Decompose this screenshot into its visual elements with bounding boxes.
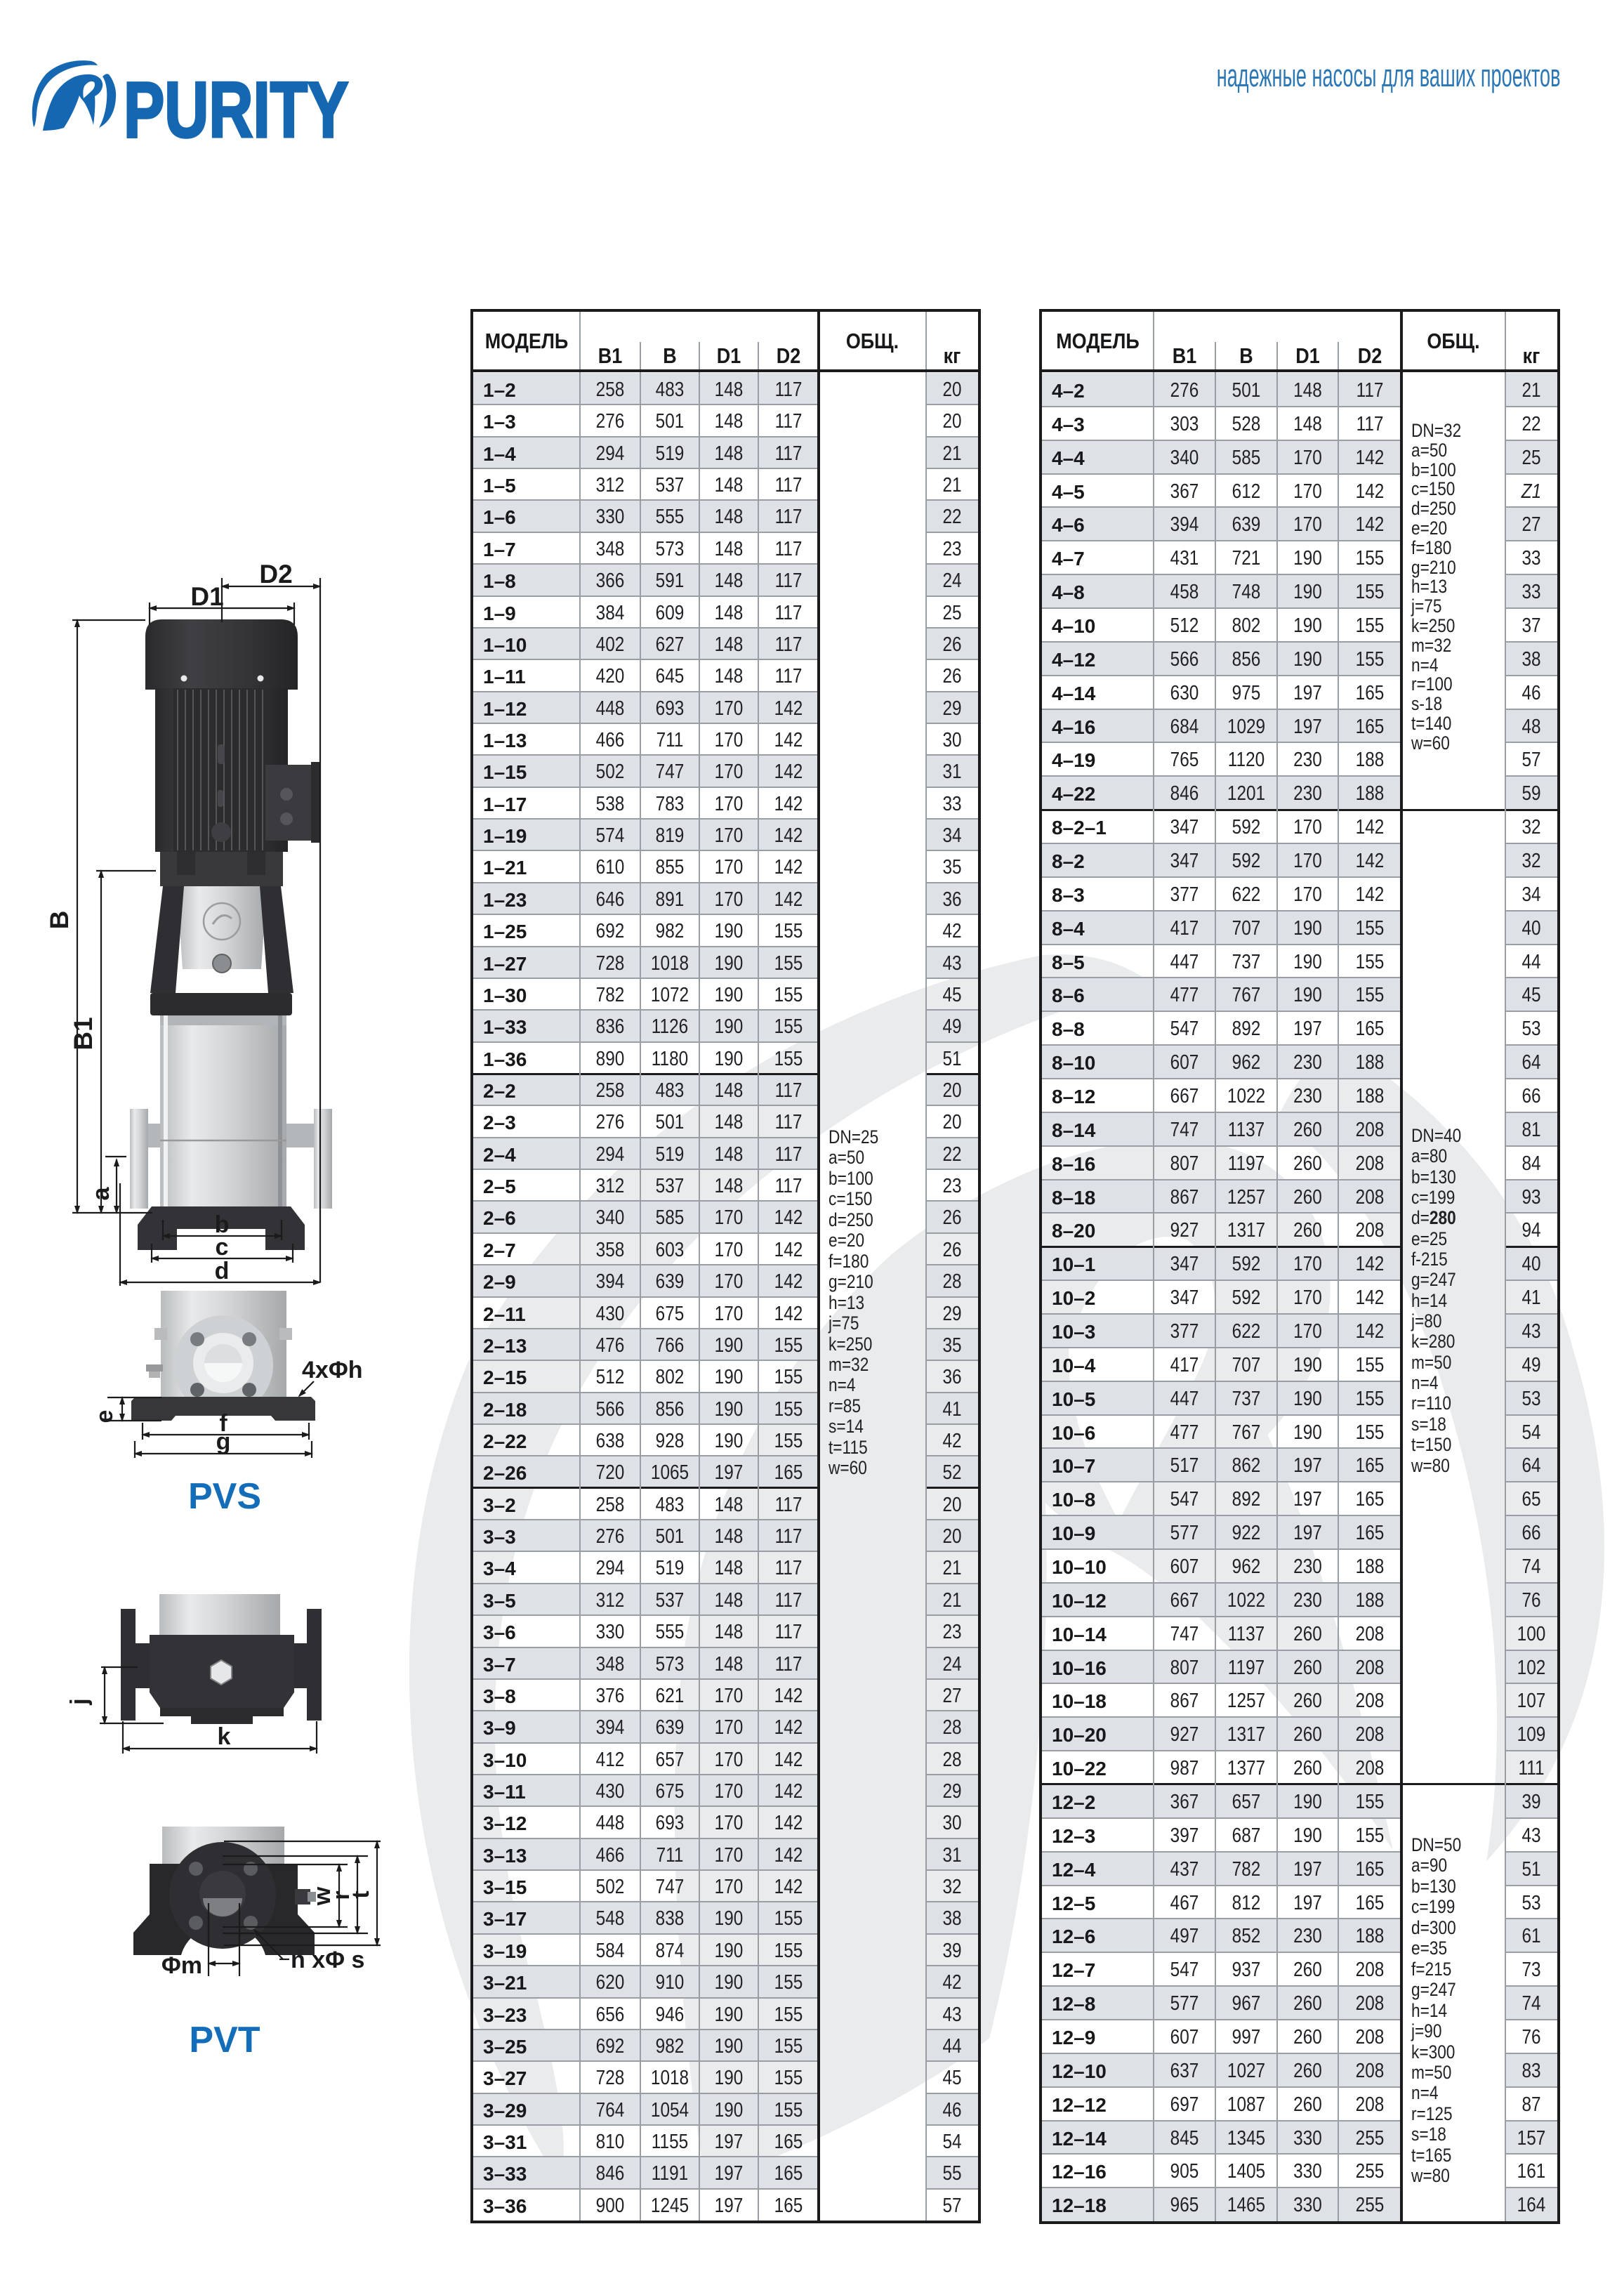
svg-text:Φm: Φm xyxy=(161,1952,202,1979)
svg-text:4xΦh: 4xΦh xyxy=(302,1357,363,1383)
svg-text:a: a xyxy=(88,1186,114,1200)
svg-text:D2: D2 xyxy=(259,560,292,588)
svg-text:B: B xyxy=(45,911,74,930)
svg-text:c: c xyxy=(216,1234,229,1261)
svg-text:d: d xyxy=(215,1258,230,1284)
svg-text:n xΦ s: n xΦ s xyxy=(291,1947,364,1973)
svg-text:g: g xyxy=(216,1428,231,1455)
svg-text:PVS: PVS xyxy=(188,1476,261,1517)
svg-text:k: k xyxy=(218,1723,231,1750)
svg-text:PVT: PVT xyxy=(189,2020,260,2060)
svg-text:j: j xyxy=(66,1698,93,1705)
svg-text:D1: D1 xyxy=(190,582,223,611)
svg-text:B1: B1 xyxy=(69,1017,98,1050)
svg-text:e: e xyxy=(91,1410,118,1423)
svg-text:t: t xyxy=(348,1890,374,1898)
